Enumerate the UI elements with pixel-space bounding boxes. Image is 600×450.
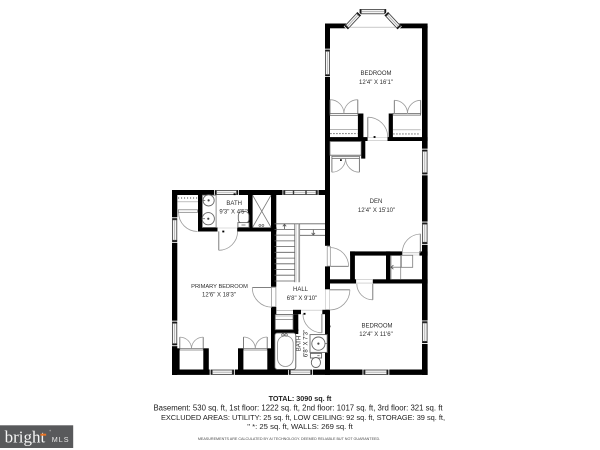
svg-text:BATH: BATH — [226, 201, 242, 207]
svg-text:6'8" X 7'3": 6'8" X 7'3" — [304, 330, 310, 357]
svg-text:MEASUREMENTS ARE CALCULATED BY: MEASUREMENTS ARE CALCULATED BY AI TECHNO… — [198, 437, 380, 441]
svg-text:MLS: MLS — [52, 435, 70, 444]
svg-text:DEN: DEN — [370, 199, 383, 205]
svg-text:HALL: HALL — [293, 287, 309, 293]
svg-text:12'4" X 15'10": 12'4" X 15'10" — [358, 208, 395, 214]
svg-text:12'4" X 11'6": 12'4" X 11'6" — [359, 332, 392, 338]
svg-text:Basement: 530 sq. ft, 1st floo: Basement: 530 sq. ft, 1st floor: 1222 sq… — [153, 404, 443, 413]
svg-text:BEDROOM: BEDROOM — [360, 71, 391, 77]
svg-text:" *: 25 sq. ft, WALLS: 269 sq.: " *: 25 sq. ft, WALLS: 269 sq. ft — [247, 422, 353, 431]
svg-text:12'6" X 18'3": 12'6" X 18'3" — [202, 293, 236, 299]
svg-text:BEDROOM: BEDROOM — [361, 323, 392, 329]
svg-text:6'8" X 9'10": 6'8" X 9'10" — [287, 296, 318, 302]
svg-text:EXCLUDED AREAS: UTILITY: 25 sq: EXCLUDED AREAS: UTILITY: 25 sq. ft, LOW … — [161, 413, 445, 422]
svg-text:bright: bright — [5, 427, 46, 446]
svg-text:PRIMARY BEDROOM: PRIMARY BEDROOM — [191, 284, 248, 290]
svg-text:BATH: BATH — [297, 336, 303, 352]
svg-text:12'4" X 16'1": 12'4" X 16'1" — [359, 80, 393, 86]
svg-text:9'3" X 4'5"*: 9'3" X 4'5"* — [219, 210, 249, 216]
svg-text:TOTAL: 3090 sq. ft: TOTAL: 3090 sq. ft — [269, 394, 332, 403]
